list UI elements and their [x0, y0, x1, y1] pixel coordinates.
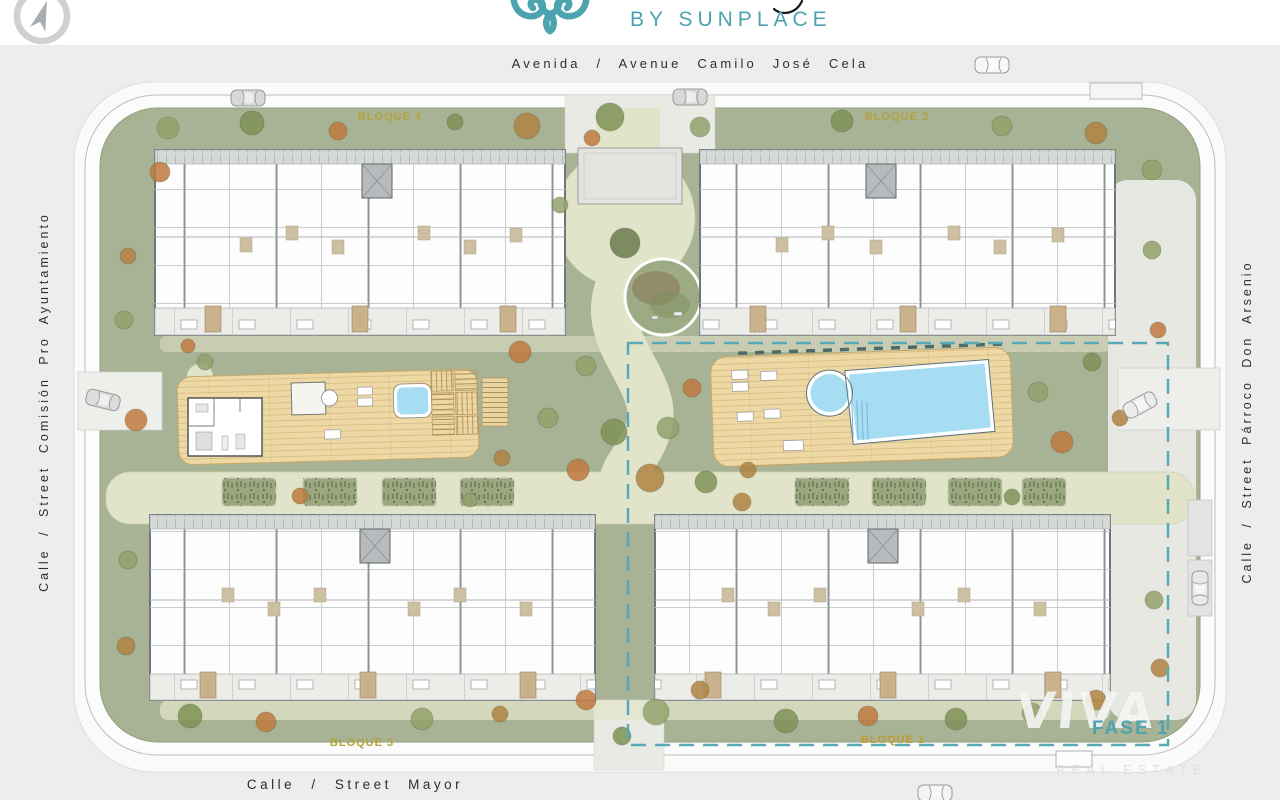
site-plan-page: BY SUNPLACE	[0, 0, 1280, 800]
block-label-bloque3: BLOQUE 3	[302, 737, 422, 749]
compass-icon	[10, 0, 74, 50]
brand-subtitle: BY SUNPLACE	[630, 8, 832, 32]
block-label-bloque4: BLOQUE 4	[330, 111, 450, 123]
street-label-bottom: Calle / Street Mayor	[30, 777, 680, 792]
phase-label: FASE 1	[1092, 718, 1169, 740]
street-label-top: Avenida / Avenue Camilo José Cela	[100, 56, 1280, 71]
block-label-bloque1: BLOQUE 1	[833, 734, 953, 746]
brand-emblem-icon	[508, 0, 592, 36]
street-label-right: Calle / Street Párroco Don Arsenio	[1240, 260, 1254, 583]
block-label-bloque2: BLOQUE 2	[837, 111, 957, 123]
street-label-left: Calle / Street Comisión Pro Ayuntamiento	[37, 212, 51, 592]
watermark-tagline: REAL ESTATE	[1056, 762, 1208, 777]
